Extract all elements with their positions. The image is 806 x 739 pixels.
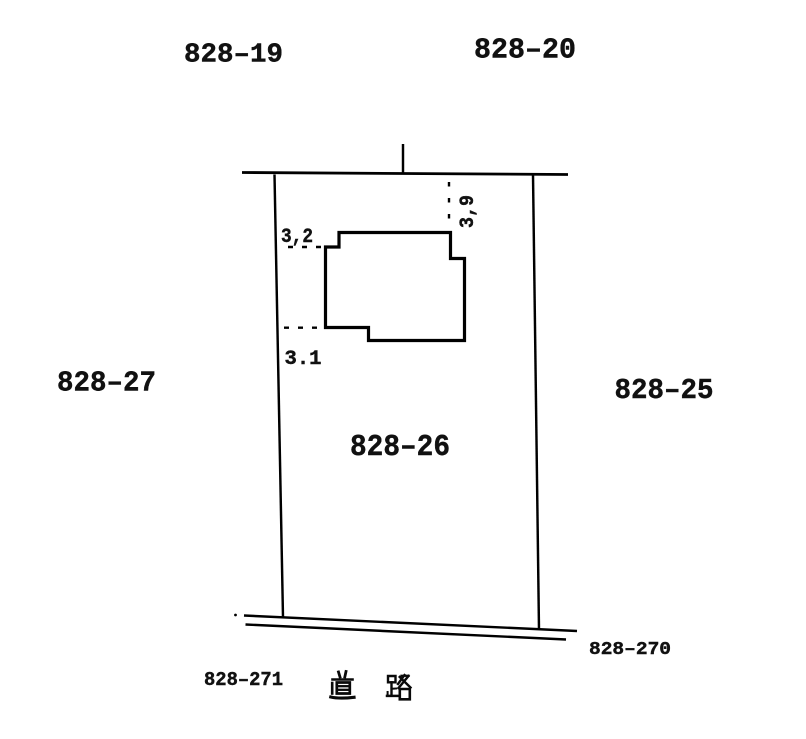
- svg-text:828–19: 828–19: [184, 41, 283, 71]
- svg-text:3.1: 3.1: [285, 348, 322, 371]
- svg-text:828–27: 828–27: [57, 367, 156, 400]
- svg-text:3,9: 3,9: [457, 195, 480, 228]
- svg-text:828–270: 828–270: [589, 639, 671, 660]
- svg-text:828–25: 828–25: [615, 374, 714, 407]
- svg-text:828–26: 828–26: [350, 430, 450, 465]
- svg-text:3,2: 3,2: [281, 226, 313, 249]
- svg-text:828–20: 828–20: [474, 34, 576, 67]
- svg-text:828–271: 828–271: [204, 669, 283, 691]
